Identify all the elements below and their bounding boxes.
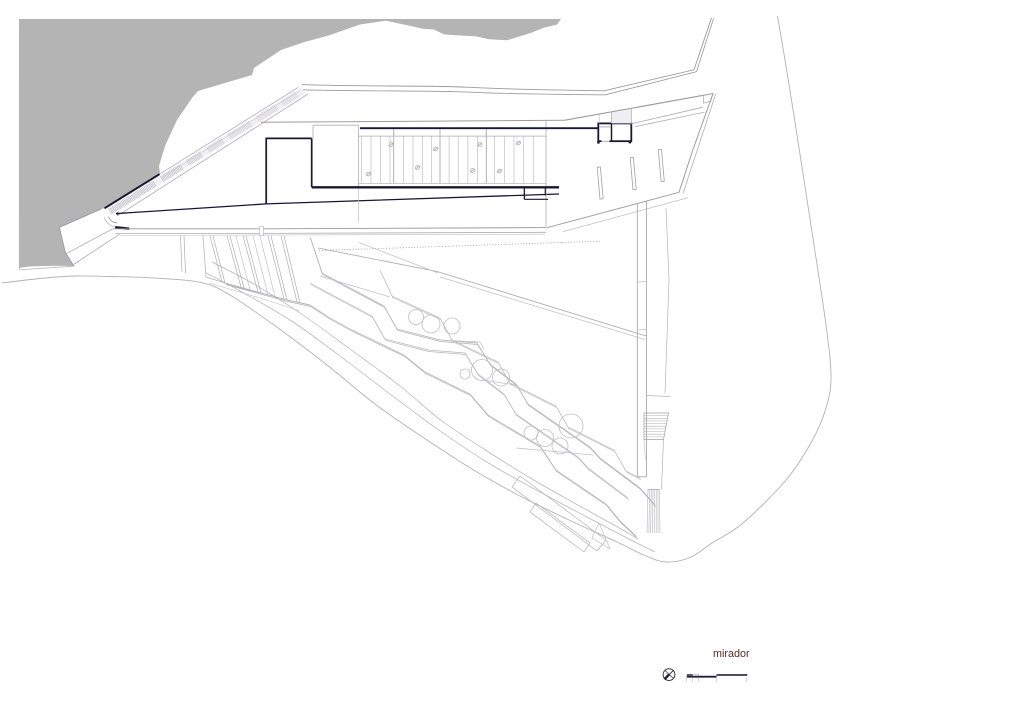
svg-text:mirador: mirador [713, 648, 750, 660]
